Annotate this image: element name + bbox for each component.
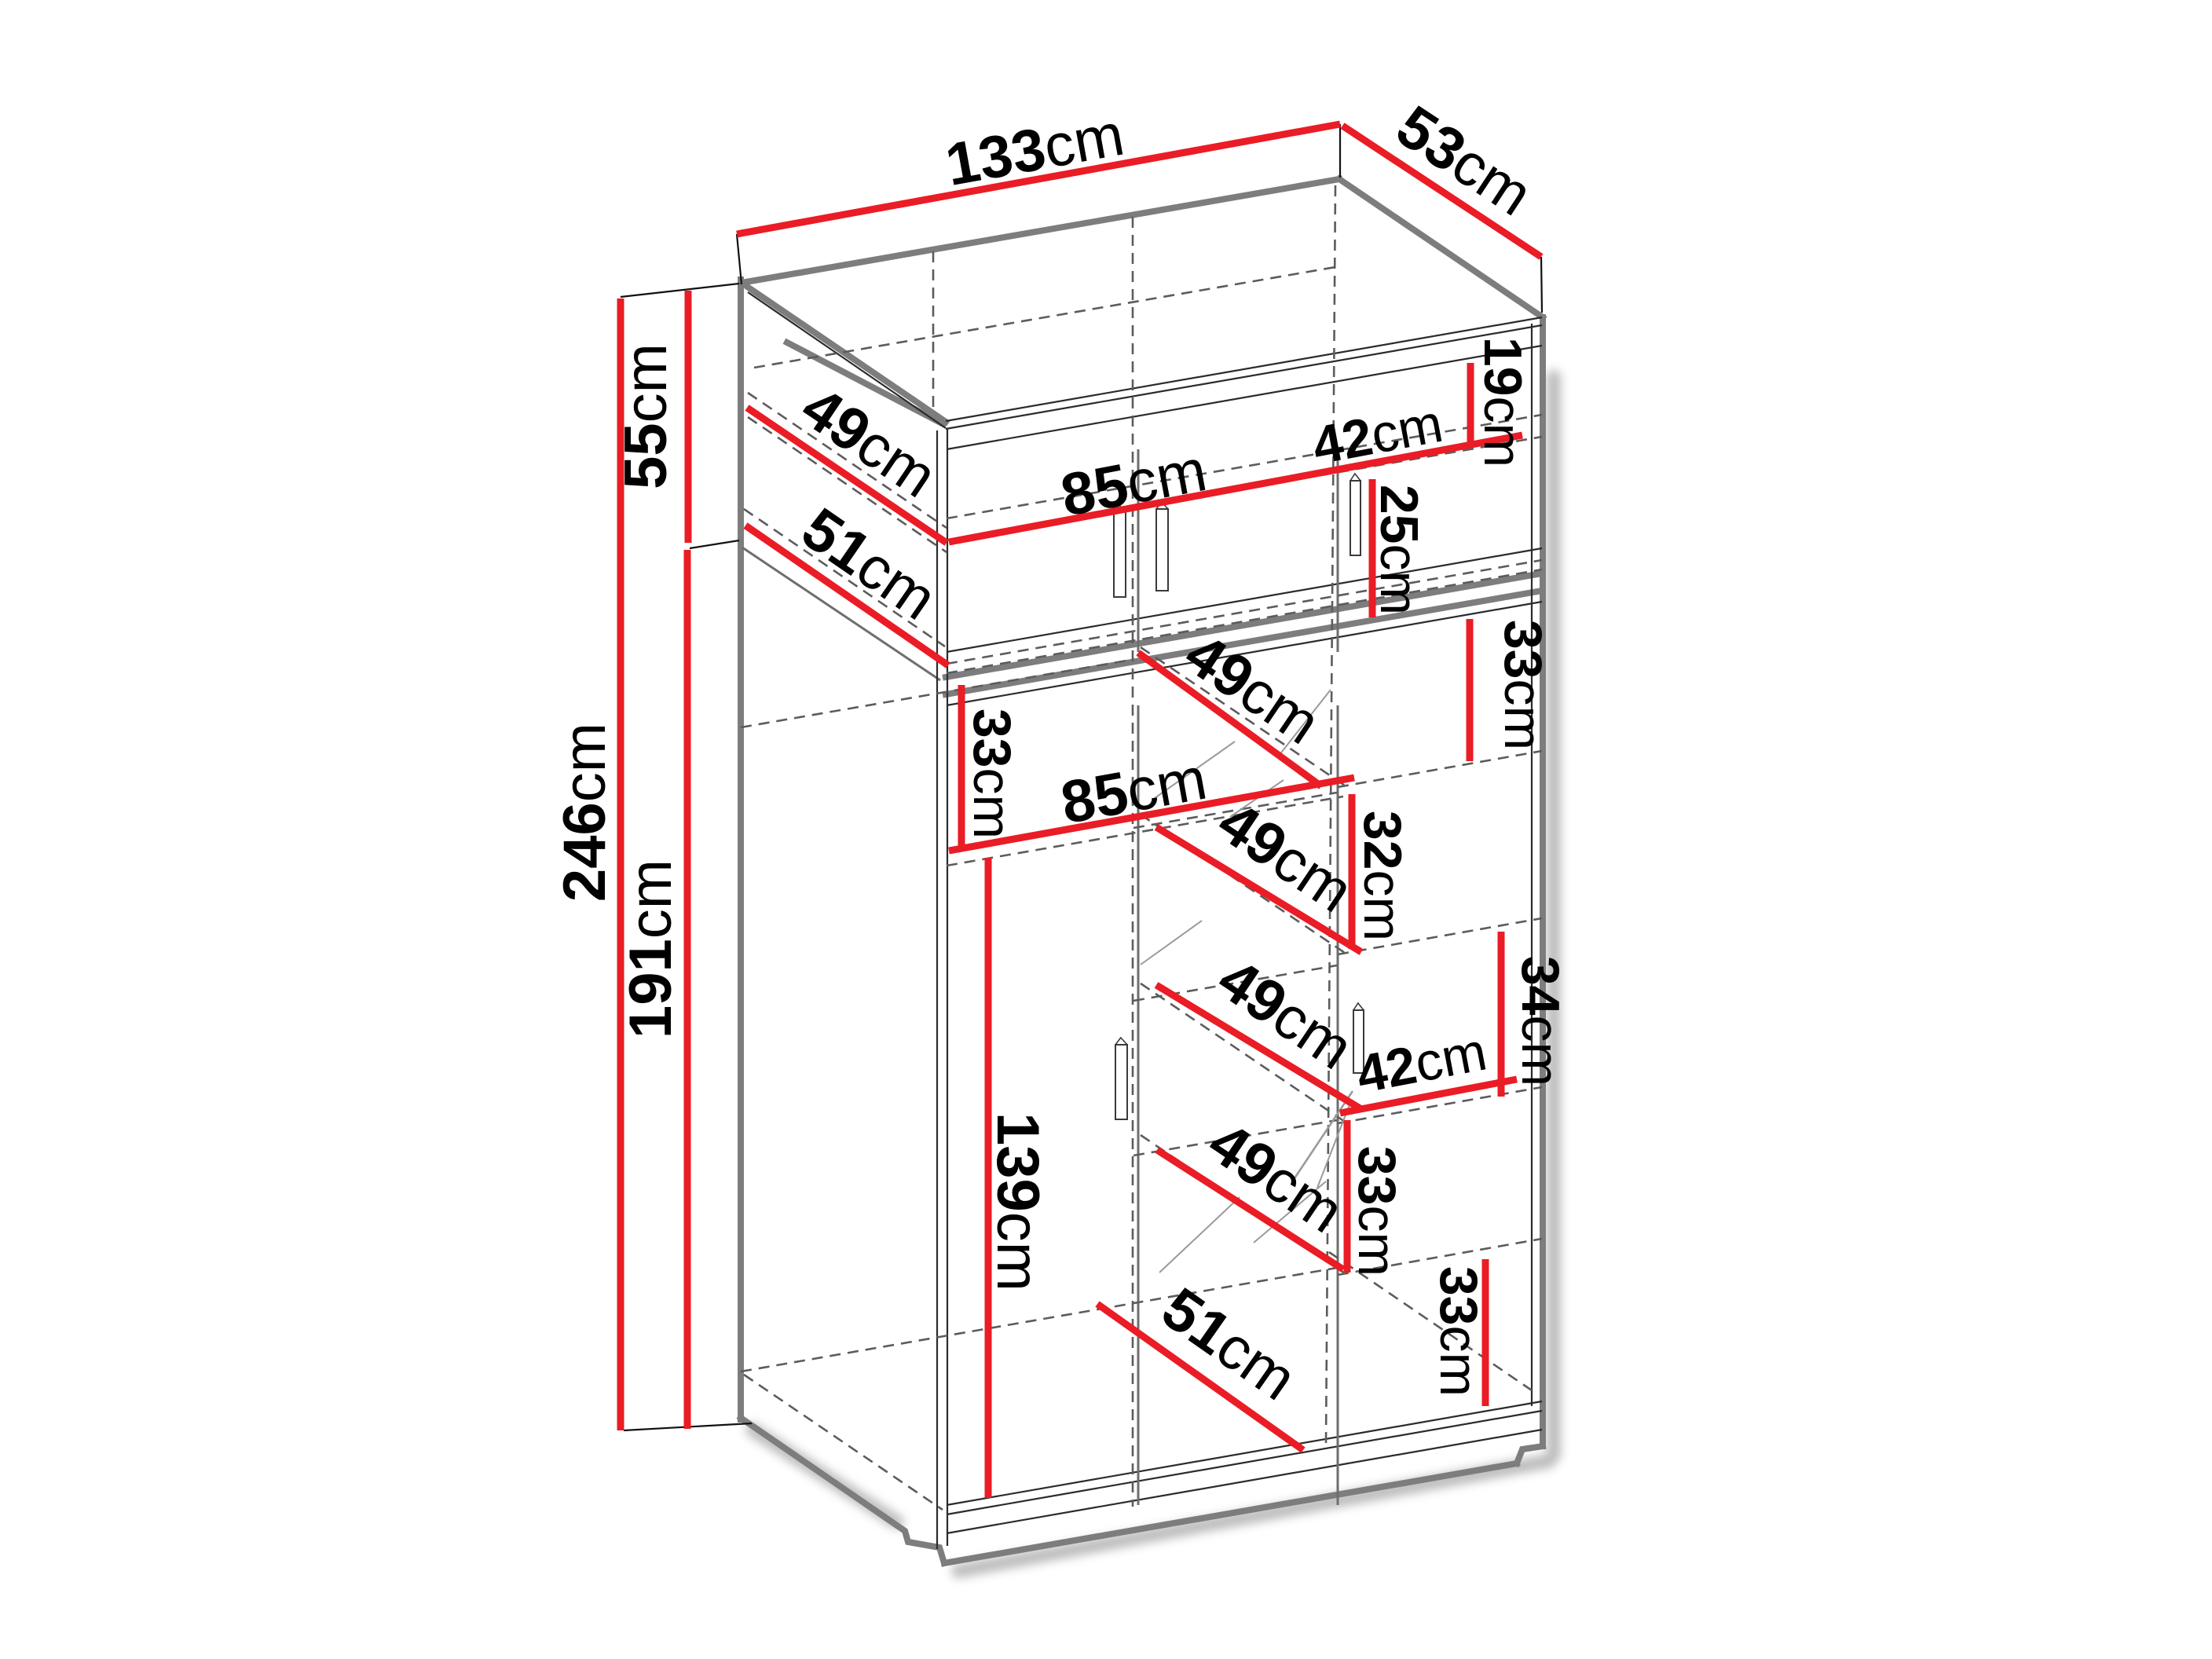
svg-text:33cm: 33cm	[1493, 620, 1553, 750]
svg-text:191cm: 191cm	[617, 859, 684, 1038]
svg-text:19cm: 19cm	[1473, 337, 1533, 467]
svg-text:33cm: 33cm	[962, 709, 1022, 839]
svg-text:34cm: 34cm	[1511, 956, 1570, 1086]
svg-text:25cm: 25cm	[1369, 485, 1429, 615]
svg-text:32cm: 32cm	[1353, 811, 1412, 941]
svg-text:33cm: 33cm	[1429, 1266, 1489, 1397]
svg-text:246cm: 246cm	[551, 723, 618, 902]
svg-text:139cm: 139cm	[984, 1112, 1051, 1291]
svg-text:55cm: 55cm	[613, 343, 679, 489]
svg-text:33cm: 33cm	[1347, 1146, 1407, 1276]
